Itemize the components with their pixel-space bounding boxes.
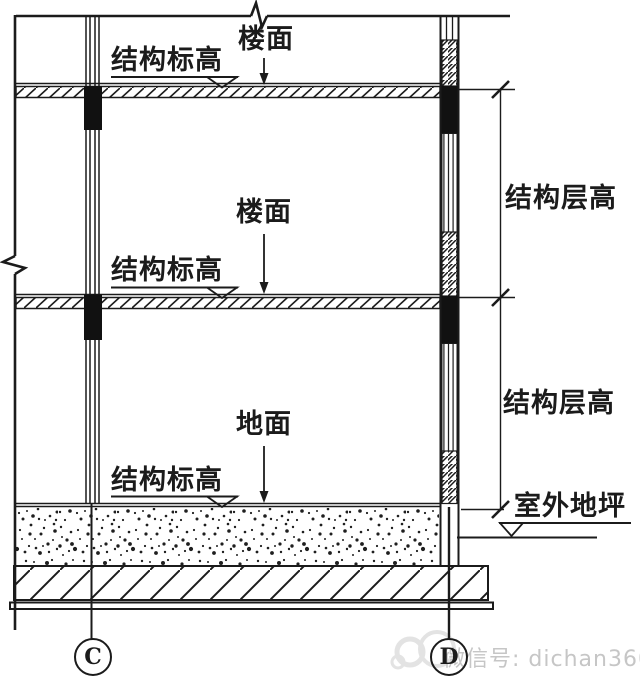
level-symbol-mid (111, 288, 238, 299)
footing (10, 566, 493, 609)
grid-letter-c: C (84, 646, 102, 668)
floor-arrow-upper (260, 58, 269, 85)
label-floor-mid: 楼面 (236, 199, 292, 227)
beam-section-left-mid (84, 295, 102, 341)
ground-arrow (260, 446, 269, 503)
grid-letter-d: D (439, 646, 458, 668)
floor-arrow-mid (260, 234, 269, 294)
label-story-height-upper: 结构层高 (505, 185, 617, 213)
label-floor-upper: 楼面 (238, 26, 294, 54)
label-ground-surface: 地面 (236, 411, 292, 439)
level-symbol-ground (111, 497, 238, 508)
label-structural-elevation-upper: 结构标高 (111, 47, 223, 75)
story-height-dimension (459, 81, 515, 518)
slab-middle (16, 295, 440, 309)
break-symbol-left (3, 256, 25, 274)
beam-section-left-upper (84, 86, 102, 130)
outdoor-grade-symbol (457, 523, 631, 538)
grid-bubble-c: C (74, 638, 112, 676)
label-story-height-lower: 结构层高 (503, 390, 615, 418)
beam-section-right-upper (440, 86, 460, 134)
footing-base-plate (10, 603, 493, 610)
grid-bubble-d: D (430, 638, 468, 676)
beam-section-right-mid (440, 296, 460, 344)
slab-upper (16, 84, 440, 98)
column-left (84, 16, 102, 504)
section-diagram-canvas: 结构标高 楼面 结构标高 楼面 结构标高 地面 结构层高 结构层高 室外地坪 C… (0, 0, 640, 682)
label-structural-elevation-mid: 结构标高 (111, 257, 223, 285)
label-outdoor-ground: 室外地坪 (514, 493, 626, 521)
watermark-text: 微信号: dichan360 (443, 641, 640, 673)
ground-slab (14, 504, 440, 566)
section-line-drawing (0, 0, 640, 682)
column-right (440, 16, 460, 567)
label-structural-elevation-ground: 结构标高 (111, 467, 223, 495)
